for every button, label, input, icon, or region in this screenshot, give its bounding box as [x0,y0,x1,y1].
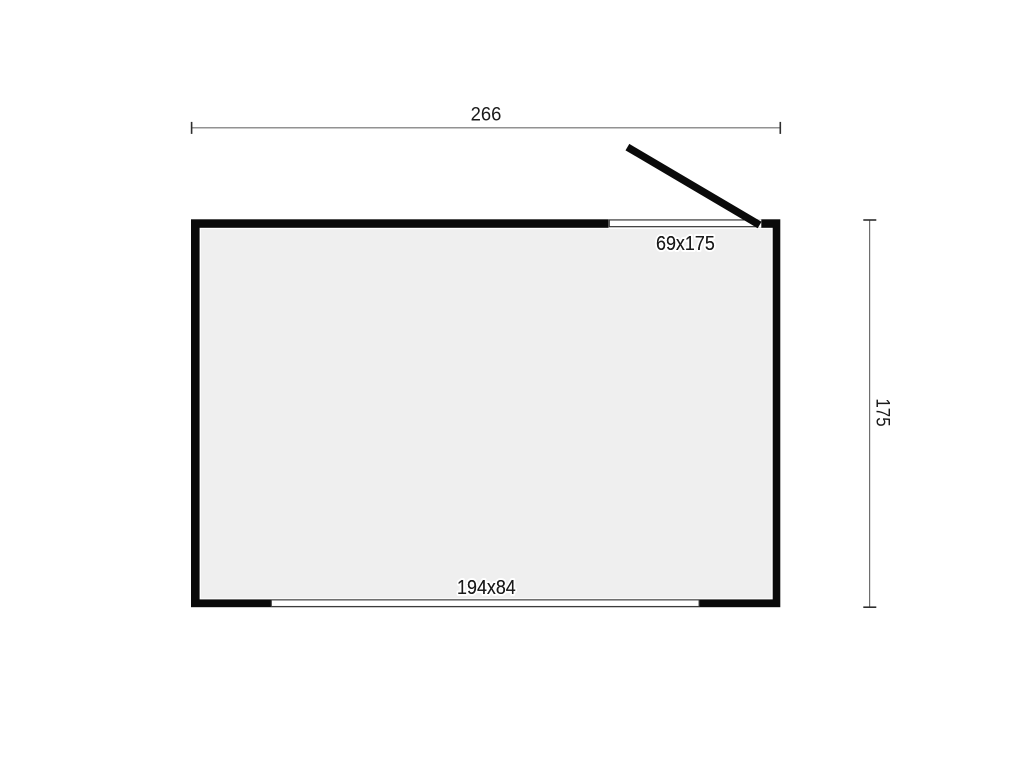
svg-text:69x175: 69x175 [656,233,715,255]
svg-text:175: 175 [872,398,894,426]
svg-text:266: 266 [471,104,502,126]
svg-text:194x84: 194x84 [457,577,516,599]
